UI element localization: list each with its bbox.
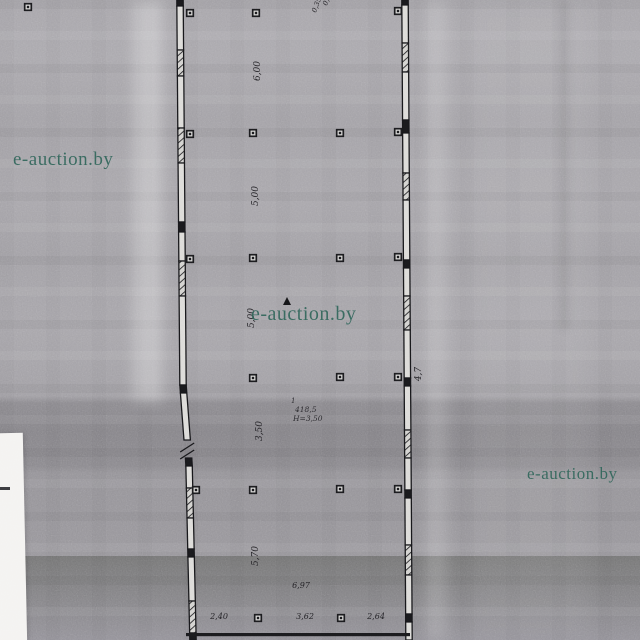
dimension-label-vertical: 5,70: [251, 546, 261, 566]
wall-segment-solid: [403, 260, 409, 268]
wall-segment-hollow: [179, 296, 186, 385]
column-marker: [255, 615, 262, 622]
dimension-label-vertical: 3,50: [255, 421, 265, 441]
column-marker: [337, 255, 344, 262]
watermark-text: e-auction.by: [13, 149, 113, 171]
wall-segment-solid: [403, 120, 409, 133]
column-marker: [25, 4, 32, 11]
watermark-text: e-auction.by: [527, 464, 618, 484]
wall-segment-hollow: [179, 232, 186, 261]
column-marker: [337, 374, 344, 381]
wall-segment-hollow: [187, 518, 194, 549]
wall-segment-solid: [179, 222, 185, 232]
top-annotation: 0,35: [310, 0, 323, 14]
wall-segment-hollow: [402, 5, 409, 43]
wall-segment-hatch: [405, 545, 412, 575]
room-label: 1418,5H=3,50: [291, 397, 323, 423]
wall-segment-hatch: [403, 173, 410, 200]
wall-segment-hollow: [405, 498, 412, 545]
dimension-label-vertical: 5,00: [251, 186, 261, 206]
left-wall: [177, 0, 196, 640]
column-marker: [187, 10, 194, 17]
right-wall: [402, 0, 412, 640]
wall-segment-hatch: [189, 601, 196, 633]
wall-segment-solid: [177, 0, 183, 6]
column-marker: [395, 374, 402, 381]
column-marker: [338, 615, 345, 622]
column-marker: [250, 255, 257, 262]
wall-segment-hatch: [178, 128, 185, 163]
bottom-wall-line: [186, 633, 410, 636]
wall-segment-hollow: [178, 163, 185, 222]
scanned-floorplan-page: 6,005,005,003,505,704,72,403,622,646,970…: [0, 0, 640, 640]
wall-segment-hatch: [177, 50, 184, 76]
scan-white-margin: [0, 433, 27, 640]
wall-segment-hollow: [406, 622, 413, 640]
column-marker: [395, 486, 402, 493]
wall-segment-hollow: [403, 268, 410, 296]
dimension-label-vertical: 4,7: [414, 367, 424, 383]
dimension-label: 3,62: [296, 612, 314, 621]
watermark-text: e-auction.by: [251, 303, 356, 326]
room-height: H=3,50: [292, 414, 323, 423]
column-marker: [337, 486, 344, 493]
wall-segment-hatch: [179, 261, 186, 296]
column-marker: [253, 10, 260, 17]
wall-segment-hollow: [404, 386, 411, 430]
wall-segment-solid: [406, 614, 412, 622]
wall-segment-hollow: [404, 330, 411, 378]
wall-segment-hollow: [405, 458, 412, 490]
wall-segment-hollow: [402, 72, 409, 120]
column-marker: [193, 487, 200, 494]
dimension-label: 6,97: [292, 581, 311, 590]
column-marker: [337, 130, 344, 137]
dimension-label: 2,64: [366, 612, 385, 621]
column-marker: [395, 8, 402, 15]
wall-segment-hollow: [180, 393, 190, 440]
wall-segment-hatch: [404, 430, 411, 458]
wall-segment-hollow: [403, 200, 410, 260]
dimension-label: 2,40: [209, 612, 228, 621]
wall-segment-hollow: [188, 557, 195, 601]
dimension-label-vertical: 6,00: [253, 61, 263, 81]
column-marker: [187, 256, 194, 263]
wall-segment-hatch: [402, 43, 409, 72]
wall-segment-hatch: [404, 296, 411, 330]
column-marker: [395, 254, 402, 261]
left-edge-tick: [0, 487, 10, 490]
wall-segment-hollow: [405, 575, 412, 614]
column-marker: [250, 375, 257, 382]
top-annotation: 0,22: [321, 0, 334, 7]
wall-segment-solid: [402, 0, 408, 5]
wall-segment-hollow: [403, 133, 410, 173]
wall-segment-hollow: [177, 6, 184, 50]
wall-segment-solid: [188, 549, 195, 557]
wall-segment-hollow: [186, 466, 193, 488]
column-marker: [250, 487, 257, 494]
wall-segment-solid: [405, 490, 411, 498]
room-number: 1: [291, 397, 295, 405]
column-marker: [250, 130, 257, 137]
wall-segment-solid: [404, 378, 410, 386]
room-area: 418,5: [294, 405, 317, 414]
wall-segment-hollow: [177, 76, 184, 128]
column-marker: [395, 129, 402, 136]
wall-segment-solid: [185, 458, 192, 466]
wall-segment-solid: [180, 385, 187, 393]
column-marker: [187, 131, 194, 138]
